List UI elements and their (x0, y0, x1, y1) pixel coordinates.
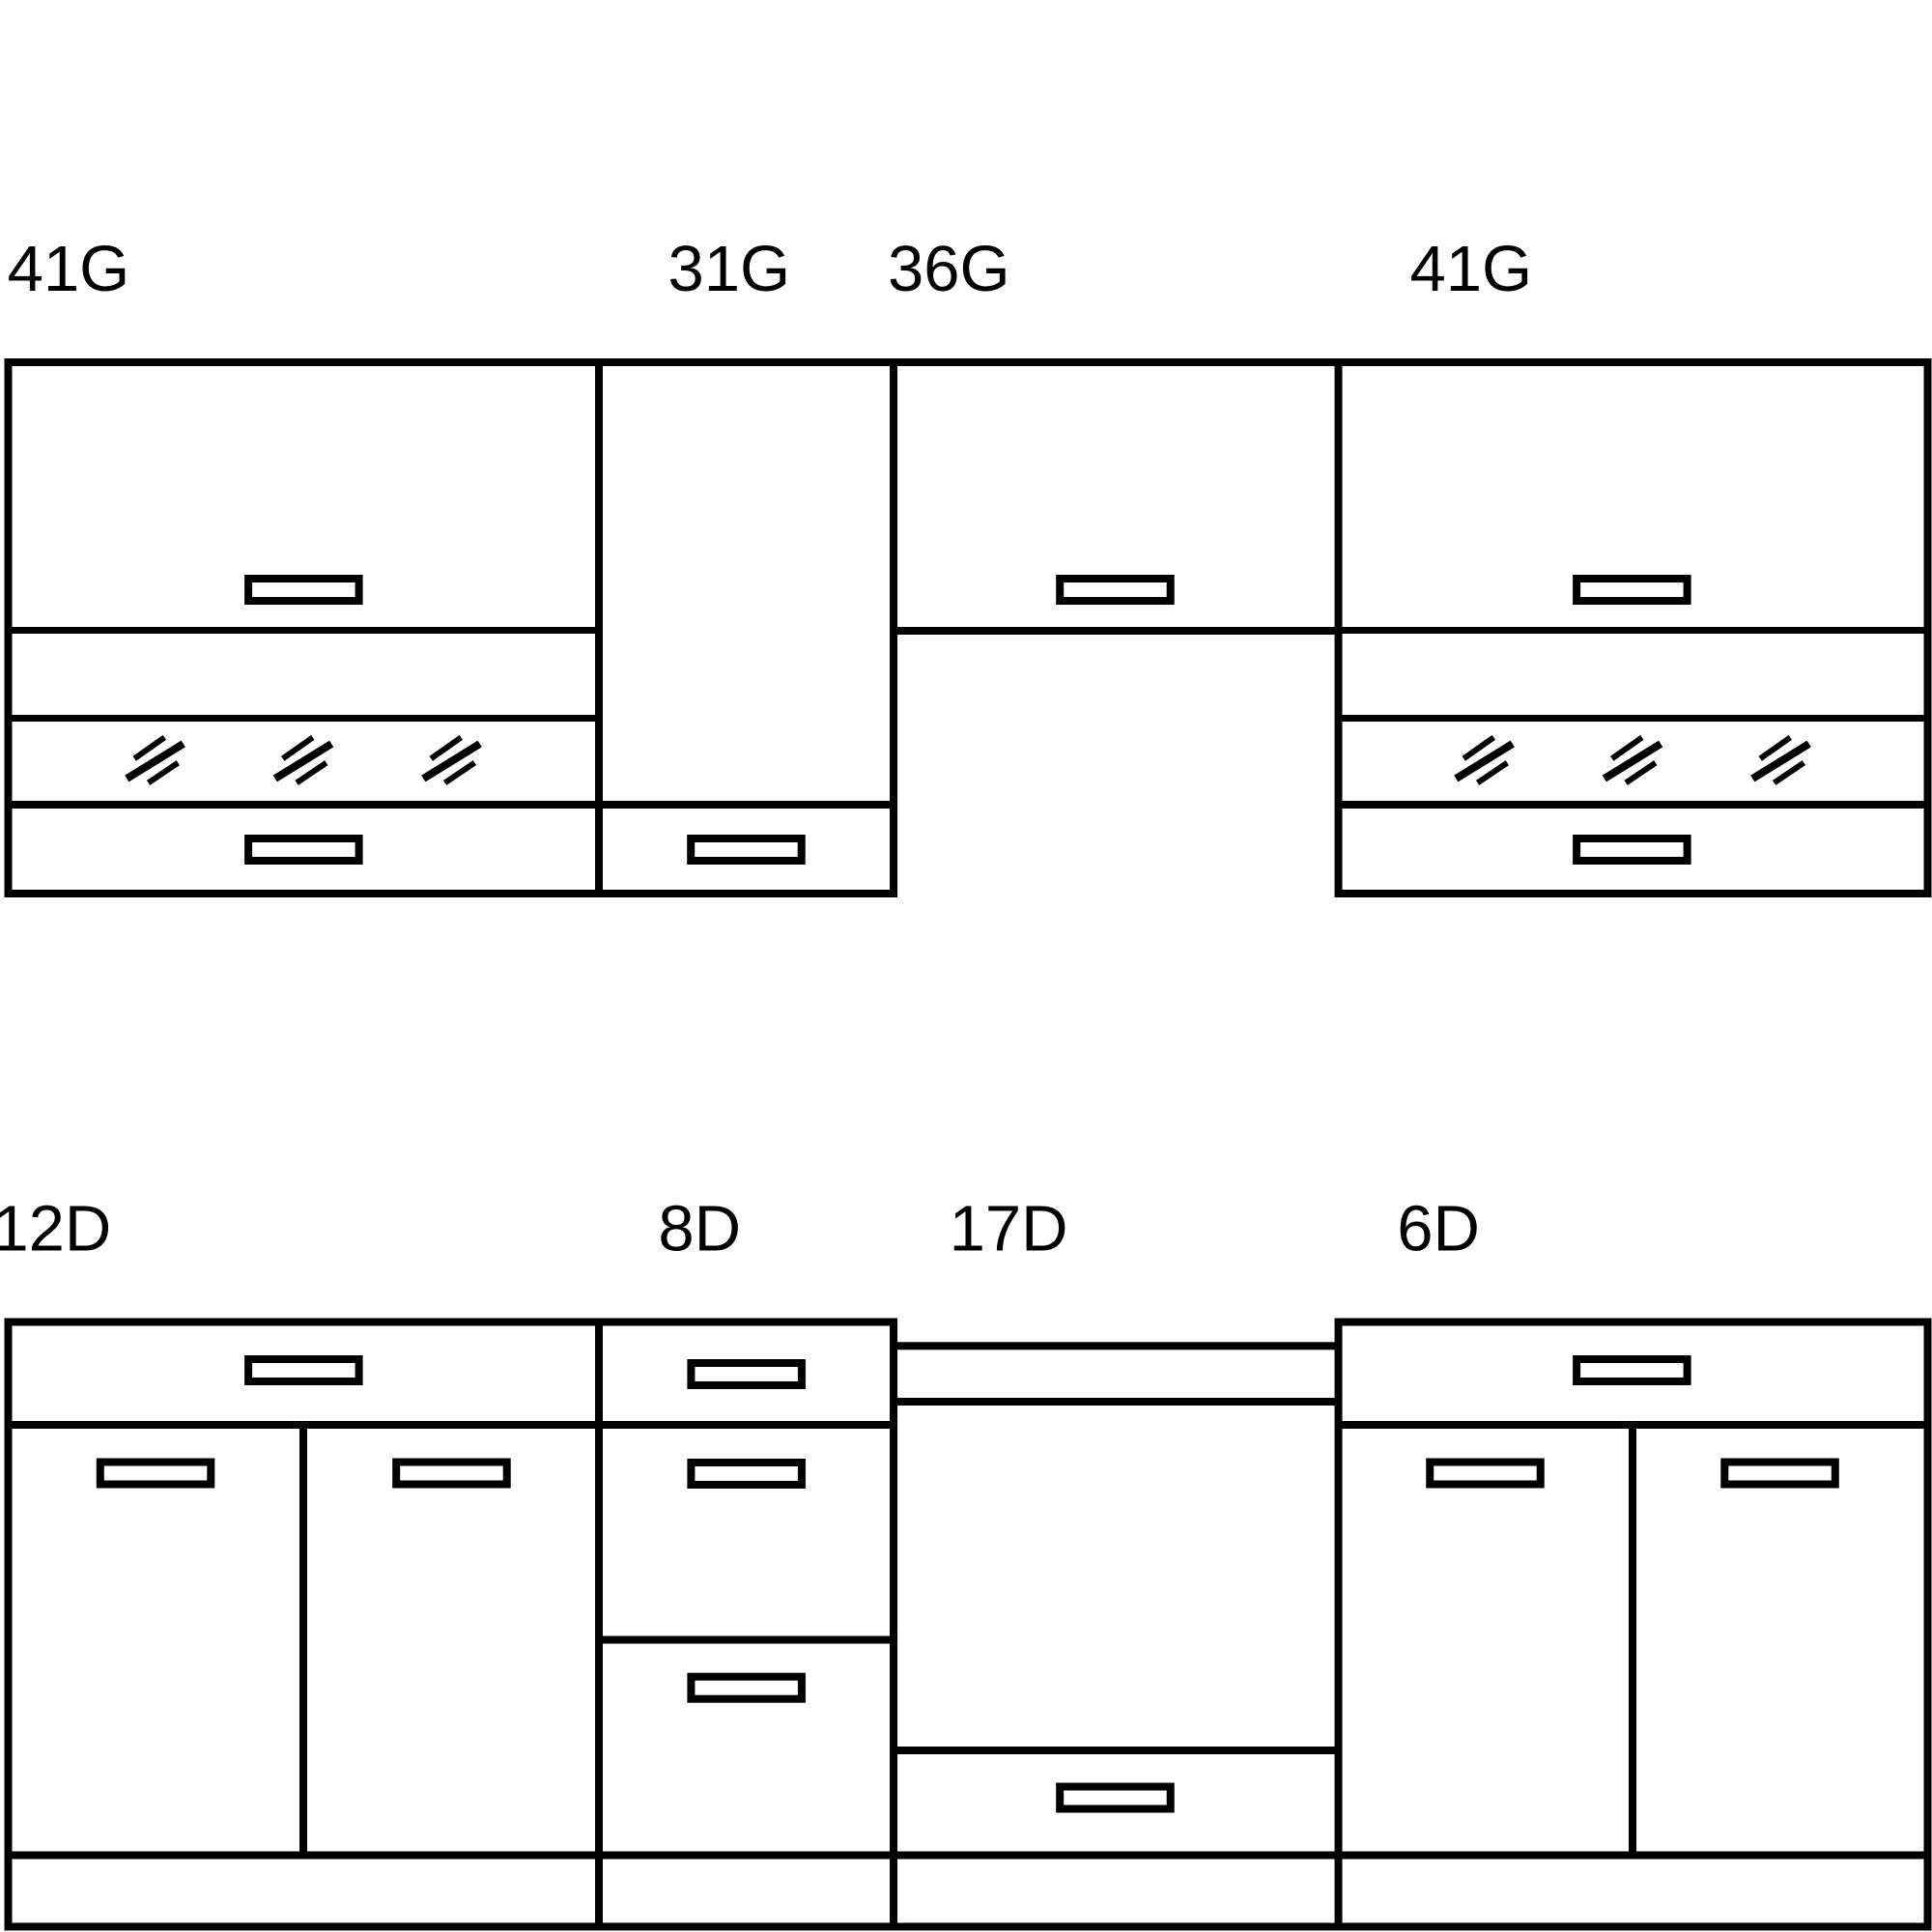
svg-text:12D: 12D (0, 1193, 111, 1265)
svg-text:17D: 17D (950, 1193, 1068, 1265)
svg-text:36G: 36G (888, 233, 1010, 305)
svg-text:41G: 41G (1410, 233, 1533, 305)
svg-text:31G: 31G (668, 233, 791, 305)
svg-text:8D: 8D (658, 1193, 741, 1265)
svg-text:6D: 6D (1397, 1193, 1480, 1265)
svg-text:41G: 41G (8, 233, 130, 305)
